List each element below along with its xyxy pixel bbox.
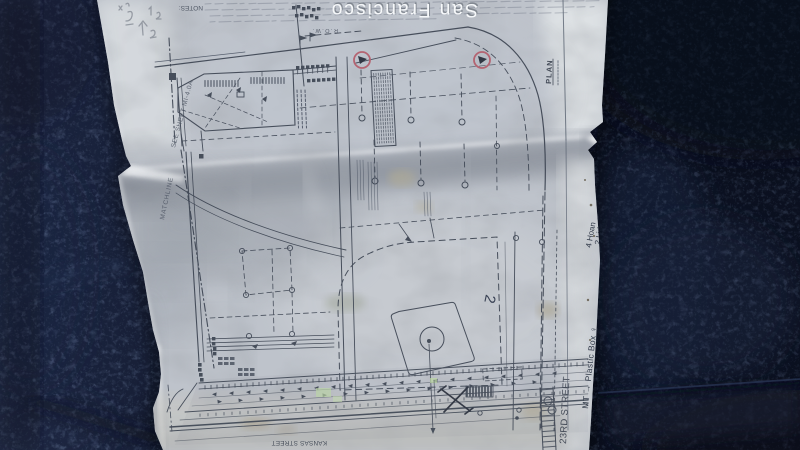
svg-text:R.O.W.: R.O.W.: [311, 27, 338, 33]
svg-text:San Francisco: San Francisco: [330, 0, 478, 21]
svg-text:NOTES:: NOTES:: [179, 4, 203, 11]
svg-text:KANSAS STREET: KANSAS STREET: [271, 439, 327, 446]
